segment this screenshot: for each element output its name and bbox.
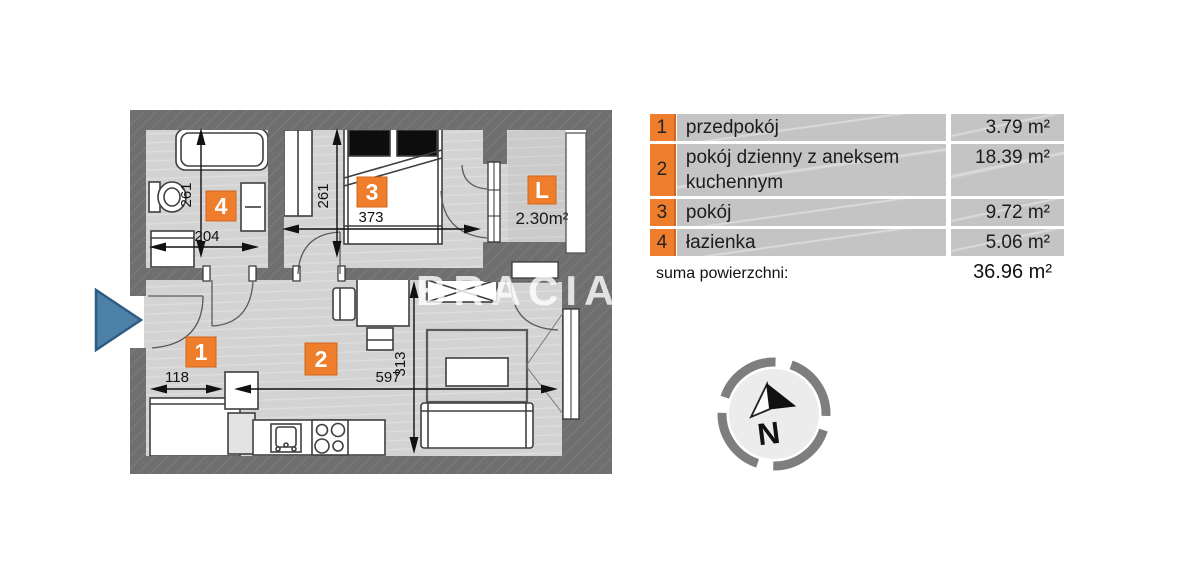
legend-row-2: 2 pokój dzienny z aneksem kuchennym 18.3… — [650, 144, 1064, 196]
stove — [312, 420, 348, 455]
compass: N — [708, 348, 839, 479]
legend-room-name: pokój — [677, 199, 946, 226]
svg-text:3: 3 — [366, 179, 379, 205]
total-value: 36.96 m² — [922, 261, 1064, 284]
legend-badge-3: 3 — [650, 199, 676, 226]
legend-room-name: łazienka — [677, 229, 946, 256]
room-badge-bathroom: 4 — [206, 191, 236, 221]
legend-badge-1: 1 — [650, 114, 676, 141]
north-label: N — [755, 415, 781, 452]
legend-badge-4: 4 — [650, 229, 676, 256]
svg-text:118: 118 — [165, 369, 189, 386]
legend-row-1: 1 przedpokój 3.79 m² — [650, 114, 1064, 141]
legend-room-name: pokój dzienny z aneksem kuchennym — [677, 144, 946, 196]
svg-text:373: 373 — [358, 209, 383, 226]
watermark: BRACIA S — [416, 267, 673, 314]
svg-text:L: L — [535, 177, 549, 203]
sofa — [421, 403, 533, 448]
wardrobe — [284, 130, 312, 216]
room-badge-hall: 1 — [186, 337, 216, 367]
legend-room-area: 9.72 m² — [951, 199, 1064, 226]
bathroom-cabinet — [241, 183, 265, 231]
svg-text:261: 261 — [178, 182, 195, 207]
entrance-arrow — [96, 290, 141, 350]
svg-text:204: 204 — [194, 228, 219, 245]
floor-plan-page: 261 204 261 373 118 — [0, 0, 1200, 577]
legend-room-area: 5.06 m² — [951, 229, 1064, 256]
legend-room-area: 3.79 m² — [951, 114, 1064, 141]
room-badge-living: 2 — [305, 343, 337, 375]
svg-text:2: 2 — [315, 346, 328, 372]
bathtub — [176, 129, 268, 170]
legend-room-area: 18.39 m² — [951, 144, 1064, 196]
svg-text:261: 261 — [315, 183, 332, 208]
legend-badge-2: 2 — [650, 144, 676, 196]
svg-text:1: 1 — [195, 339, 208, 365]
total-label: suma powierzchni: — [650, 265, 922, 283]
legend-row-3: 3 pokój 9.72 m² — [650, 199, 1064, 226]
legend-total-row: suma powierzchni: 36.96 m² — [650, 261, 1064, 284]
kitchen-sink — [271, 424, 301, 452]
svg-text:313: 313 — [392, 351, 409, 376]
legend-row-4: 4 łazienka 5.06 m² — [650, 229, 1064, 256]
room-badge-bedroom: 3 — [357, 177, 387, 207]
balcony-railing — [566, 133, 586, 253]
legend-room-name: przedpokój — [677, 114, 946, 141]
balcony-area-label: 2.30m² — [516, 209, 569, 228]
floor-plan-drawing: 261 204 261 373 118 — [0, 0, 1200, 577]
balcony-door-window — [488, 162, 500, 242]
area-legend-table: 1 przedpokój 3.79 m² 2 pokój dzienny z a… — [650, 114, 1064, 284]
svg-text:4: 4 — [215, 193, 228, 219]
